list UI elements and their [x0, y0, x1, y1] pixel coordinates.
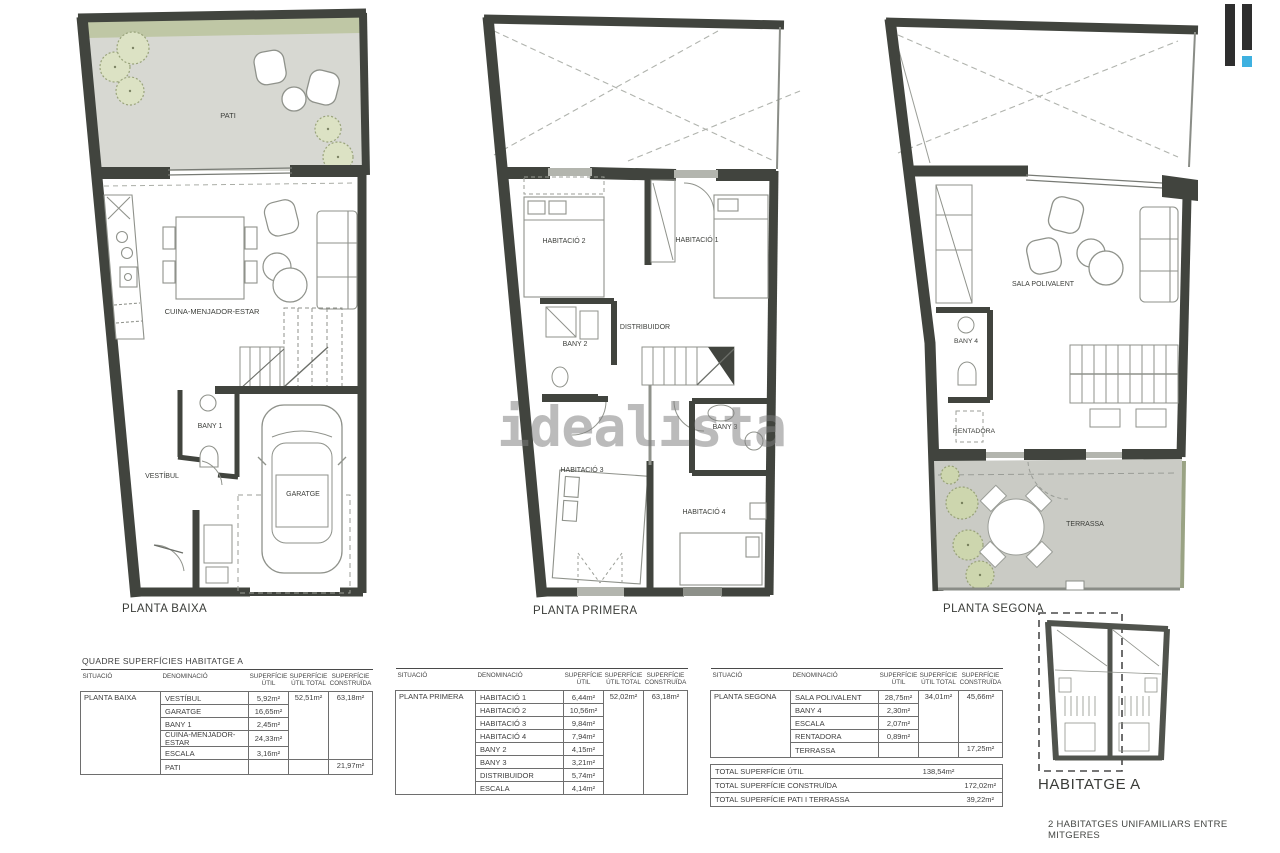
surface-table-planta-segona: SITUACIÓ DENOMINACIÓ SUPERFÍCIE ÚTIL SUP… [710, 668, 1002, 807]
table-cell [919, 743, 959, 758]
armchair-icon [262, 198, 307, 302]
totals-row: TOTAL SUPERFÍCIE PATI I TERRASSA39,22m² [711, 793, 1003, 807]
floorplan-planta-segona: BANY 4 RENTADORA SALA POLIVALENT [878, 5, 1213, 620]
table-cell: BANY 3 [476, 756, 564, 769]
table-cell: DISTRIBUIDOR [476, 769, 564, 782]
table-cell: 5,92m² [249, 692, 289, 705]
col-superficie-util-total: SUPERFÍCIE ÚTIL TOTAL [289, 670, 329, 692]
floorplan-planta-baixa: PATI [70, 5, 390, 620]
table-cell: HABITACIÓ 4 [476, 730, 564, 743]
room-label-pati: PATI [220, 111, 236, 120]
table-cell: ESCALA [791, 717, 879, 730]
terrace-wall [936, 449, 1182, 461]
table-cell: 9,84m² [564, 717, 604, 730]
totals-cell: 172,02m² [959, 779, 1003, 793]
void-cross-lines [898, 35, 1178, 157]
bed-icon [524, 197, 604, 297]
table-cell: BANY 4 [791, 704, 879, 717]
table-row: PLANTA SEGONASALA POLIVALENT28,75m²34,01… [711, 691, 1003, 704]
table-cell: PLANTA PRIMERA [396, 691, 476, 795]
totals-cell: TOTAL SUPERFÍCIE CONSTRUÏDA [711, 779, 919, 793]
table-cell: 63,18m² [644, 691, 688, 795]
table-cell: ESCALA [161, 747, 249, 760]
room-label-cuina: CUINA-MENJADOR-ESTAR [165, 307, 260, 316]
table-row: PLANTA BAIXAVESTÍBUL5,92m²52,51m²63,18m² [81, 692, 373, 705]
table-cell: 52,51m² [289, 692, 329, 760]
table-cell: 4,14m² [564, 782, 604, 795]
room-label-bany2: BANY 2 [563, 341, 588, 348]
bottom-wall [540, 587, 770, 596]
washer-outline [956, 411, 983, 442]
table-header-row: SITUACIÓ DENOMINACIÓ SUPERFÍCIE ÚTIL SUP… [81, 670, 373, 692]
plan2-title: PLANTA PRIMERA [533, 605, 637, 617]
totals-cell: TOTAL SUPERFÍCIE PATI I TERRASSA [711, 793, 919, 807]
keyplan-habitatge-a [1035, 608, 1180, 778]
table-body: PLANTA PRIMERAHABITACIÓ 16,44m²52,02m²63… [396, 691, 688, 795]
logo-bar [1242, 4, 1252, 50]
col-superficie-util: SUPERFÍCIE ÚTIL [564, 669, 604, 691]
col-denominacio: DENOMINACIÓ [476, 669, 564, 691]
col-situacio: SITUACIÓ [396, 669, 476, 691]
table-cell: VESTÍBUL [161, 692, 249, 705]
table-cell: BANY 1 [161, 718, 249, 731]
table-cell [879, 743, 919, 758]
table-cell: 2,30m² [879, 704, 919, 717]
drain-notch [1066, 581, 1084, 590]
totals-body: TOTAL SUPERFÍCIE ÚTIL138,54m²TOTAL SUPER… [711, 765, 1003, 807]
table-cell: GARATGE [161, 705, 249, 718]
bed-icon [714, 195, 768, 298]
totals-cell [959, 765, 1003, 779]
planter-strip [1182, 461, 1184, 588]
toilet-icon [200, 395, 218, 467]
totals-table: TOTAL SUPERFÍCIE ÚTIL138,54m²TOTAL SUPER… [710, 764, 1003, 807]
table-cell: SALA POLIVALENT [791, 691, 879, 704]
col-superficie-util-total: SUPERFÍCIE ÚTIL TOTAL [604, 669, 644, 691]
wardrobe-outline [524, 177, 604, 194]
room-label-terrassa: TERRASSA [1066, 521, 1104, 528]
project-subtitle: 2 HABITATGES UNIFAMILIARS ENTRE MITGERES [1048, 819, 1280, 841]
room-label-rentadora: RENTADORA [953, 428, 996, 435]
table-cell: CUINA-MENJADOR-ESTAR [161, 731, 249, 747]
table-header-row: SITUACIÓ DENOMINACIÓ SUPERFÍCIE ÚTIL SUP… [711, 669, 1003, 691]
col-superficie-construida: SUPERFÍCIE CONSTRUÏDA [959, 669, 1003, 691]
void-cross-lines [494, 31, 800, 161]
table-cell: 3,21m² [564, 756, 604, 769]
totals-cell: 138,54m² [919, 765, 959, 779]
totals-row: TOTAL SUPERFÍCIE ÚTIL138,54m² [711, 765, 1003, 779]
bathroom-fixtures-icon [958, 317, 976, 385]
table-cell: 52,02m² [604, 691, 644, 795]
table-cell: 5,74m² [564, 769, 604, 782]
table-body: PLANTA SEGONASALA POLIVALENT28,75m²34,01… [711, 691, 1003, 758]
table-cell: 63,18m² [329, 692, 373, 760]
room-label-bany4: BANY 4 [954, 338, 978, 345]
col-superficie-util: SUPERFÍCIE ÚTIL [879, 669, 919, 691]
table-cell: 4,15m² [564, 743, 604, 756]
lounge-chair-icon [1025, 195, 1123, 285]
stairs-icon [642, 347, 734, 385]
col-superficie-util-total: SUPERFÍCIE ÚTIL TOTAL [919, 669, 959, 691]
table-cell: HABITACIÓ 1 [476, 691, 564, 704]
table-cell: PATI [161, 760, 249, 775]
bed-icon [552, 470, 647, 584]
room-label-sala: SALA POLIVALENT [1012, 281, 1075, 288]
stairs-icon [240, 308, 342, 389]
table-cell: PLANTA BAIXA [81, 692, 161, 775]
plan1-title: PLANTA BAIXA [122, 603, 207, 615]
totals-cell [919, 779, 959, 793]
surface-table-planta-primera: SITUACIÓ DENOMINACIÓ SUPERFÍCIE ÚTIL SUP… [395, 668, 687, 795]
door-leaf [154, 545, 183, 553]
wardrobe-icon [936, 185, 972, 303]
room-label-vestibul: VESTÍBUL [145, 471, 179, 480]
totals-cell: TOTAL SUPERFÍCIE ÚTIL [711, 765, 919, 779]
table-cell: HABITACIÓ 3 [476, 717, 564, 730]
facade-wall-interior [504, 168, 776, 178]
door-arc [684, 183, 714, 211]
table-cell: 21,97m² [329, 760, 373, 775]
table-cell: 45,66m² [959, 691, 1003, 743]
dining-table-icon [163, 217, 257, 299]
floorplan-sheet: PATI [0, 0, 1280, 853]
shaft [648, 177, 675, 265]
sofa-icon [317, 211, 357, 309]
table-cell: 0,89m² [879, 730, 919, 743]
table-cell: ESCALA [476, 782, 564, 795]
table-cell: BANY 2 [476, 743, 564, 756]
window [577, 587, 624, 596]
col-superficie-construida: SUPERFÍCIE CONSTRUÏDA [329, 670, 373, 692]
table-cell: 17,25m² [959, 743, 1003, 758]
table-row: PLANTA PRIMERAHABITACIÓ 16,44m²52,02m²63… [396, 691, 688, 704]
table-title: QUADRE SUPERFÍCIES HABITATGE A [82, 656, 372, 666]
window [683, 587, 722, 596]
table-cell: 16,65m² [249, 705, 289, 718]
keyplan-title: HABITATGE A [1038, 776, 1141, 793]
room-label-bany1: BANY 1 [198, 423, 223, 430]
sofa-icon [1140, 207, 1178, 302]
room-label-distribuidor: DISTRIBUIDOR [620, 324, 670, 331]
table-cell: 34,01m² [919, 691, 959, 743]
table-cell: PLANTA SEGONA [711, 691, 791, 758]
floorplan-planta-primera: HABITACIÓ 2 HABITACIÓ 1 BANY 2 DIST [478, 5, 803, 620]
table-header-row: SITUACIÓ DENOMINACIÓ SUPERFÍCIE ÚTIL SUP… [396, 669, 688, 691]
stairs-icon [1070, 345, 1178, 427]
table-cell: RENTADORA [791, 730, 879, 743]
table-cell: HABITACIÓ 2 [476, 704, 564, 717]
plan3-title: PLANTA SEGONA [943, 603, 1044, 615]
logo-bar [1225, 4, 1235, 66]
totals-cell [919, 793, 959, 807]
table-cell: 6,44m² [564, 691, 604, 704]
table-cell [289, 760, 329, 775]
table-cell: 3,16m² [249, 747, 289, 760]
surface-table-planta-baixa: QUADRE SUPERFÍCIES HABITATGE A SITUACIÓ … [80, 656, 372, 775]
room-label-garatge: GARATGE [286, 491, 320, 498]
room-label-hab4: HABITACIÓ 4 [682, 507, 725, 516]
table-cell: 2,45m² [249, 718, 289, 731]
idealista-watermark: idealista [497, 394, 797, 464]
table-cell [249, 760, 289, 775]
col-superficie-util: SUPERFÍCIE ÚTIL [249, 670, 289, 692]
totals-row: TOTAL SUPERFÍCIE CONSTRUÏDA172,02m² [711, 779, 1003, 793]
col-denominacio: DENOMINACIÓ [161, 670, 249, 692]
col-denominacio: DENOMINACIÓ [791, 669, 879, 691]
car-icon [258, 405, 346, 573]
table-cell: 7,94m² [564, 730, 604, 743]
table-cell: 24,33m² [249, 731, 289, 747]
idealista-logo [1225, 4, 1255, 70]
col-superficie-construida: SUPERFÍCIE CONSTRUÏDA [644, 669, 688, 691]
table-cell: 10,56m² [564, 704, 604, 717]
room-label-hab2: HABITACIÓ 2 [542, 236, 585, 245]
col-situacio: SITUACIÓ [81, 670, 161, 692]
totals-cell: 39,22m² [959, 793, 1003, 807]
table-body: PLANTA BAIXAVESTÍBUL5,92m²52,51m²63,18m²… [81, 692, 373, 775]
table-cell: 2,07m² [879, 717, 919, 730]
logo-accent-square [1242, 56, 1252, 67]
room-label-hab3: HABITACIÓ 3 [560, 465, 603, 474]
room-label-hab1: HABITACIÓ 1 [675, 235, 718, 244]
col-situacio: SITUACIÓ [711, 669, 791, 691]
table-cell: TERRASSA [791, 743, 879, 758]
table-cell: 28,75m² [879, 691, 919, 704]
storage-icon [204, 525, 232, 583]
